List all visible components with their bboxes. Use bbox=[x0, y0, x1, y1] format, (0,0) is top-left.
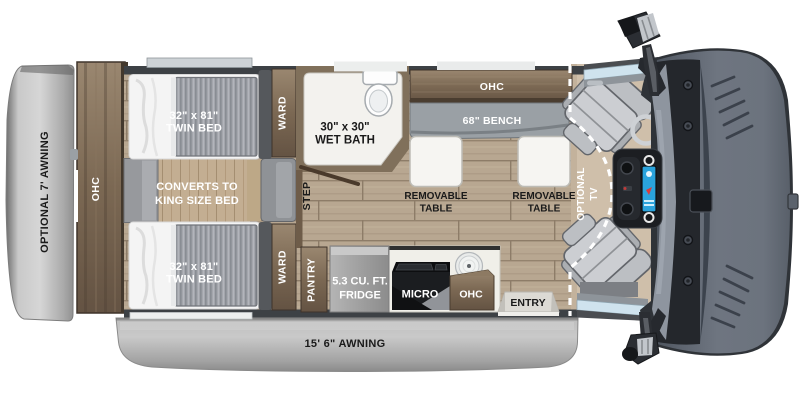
svg-text:TWIN BED: TWIN BED bbox=[166, 274, 222, 286]
svg-text:FRIDGE: FRIDGE bbox=[339, 290, 381, 302]
svg-text:WET BATH: WET BATH bbox=[315, 135, 375, 147]
svg-text:15' 6" AWNING: 15' 6" AWNING bbox=[304, 338, 385, 350]
svg-text:OHC: OHC bbox=[90, 177, 102, 202]
svg-text:TV: TV bbox=[589, 187, 600, 200]
svg-text:68" BENCH: 68" BENCH bbox=[463, 115, 522, 127]
svg-text:KING SIZE BED: KING SIZE BED bbox=[155, 195, 239, 207]
svg-text:WARD: WARD bbox=[277, 250, 289, 284]
svg-text:REMOVABLE: REMOVABLE bbox=[404, 191, 467, 202]
svg-text:TABLE: TABLE bbox=[528, 204, 561, 215]
svg-text:32" x 81": 32" x 81" bbox=[170, 110, 219, 122]
svg-text:OPTIONAL: OPTIONAL bbox=[576, 167, 587, 220]
svg-text:REMOVABLE: REMOVABLE bbox=[512, 191, 575, 202]
svg-text:OPTIONAL 7' AWNING: OPTIONAL 7' AWNING bbox=[39, 131, 51, 253]
svg-text:PANTRY: PANTRY bbox=[306, 258, 318, 302]
svg-text:30" x 30": 30" x 30" bbox=[320, 122, 369, 134]
svg-text:ENTRY: ENTRY bbox=[510, 297, 545, 309]
svg-text:WARD: WARD bbox=[277, 96, 289, 130]
svg-text:32" x 81": 32" x 81" bbox=[170, 261, 219, 273]
svg-text:5.3 CU. FT.: 5.3 CU. FT. bbox=[332, 276, 388, 288]
svg-text:TABLE: TABLE bbox=[420, 204, 453, 215]
svg-text:TWIN BED: TWIN BED bbox=[166, 123, 222, 135]
svg-text:MICRO: MICRO bbox=[402, 289, 439, 301]
svg-text:OHC: OHC bbox=[459, 289, 483, 301]
svg-text:CONVERTS TO: CONVERTS TO bbox=[156, 181, 238, 193]
svg-text:OHC: OHC bbox=[480, 81, 505, 93]
svg-text:STEP: STEP bbox=[301, 182, 313, 211]
